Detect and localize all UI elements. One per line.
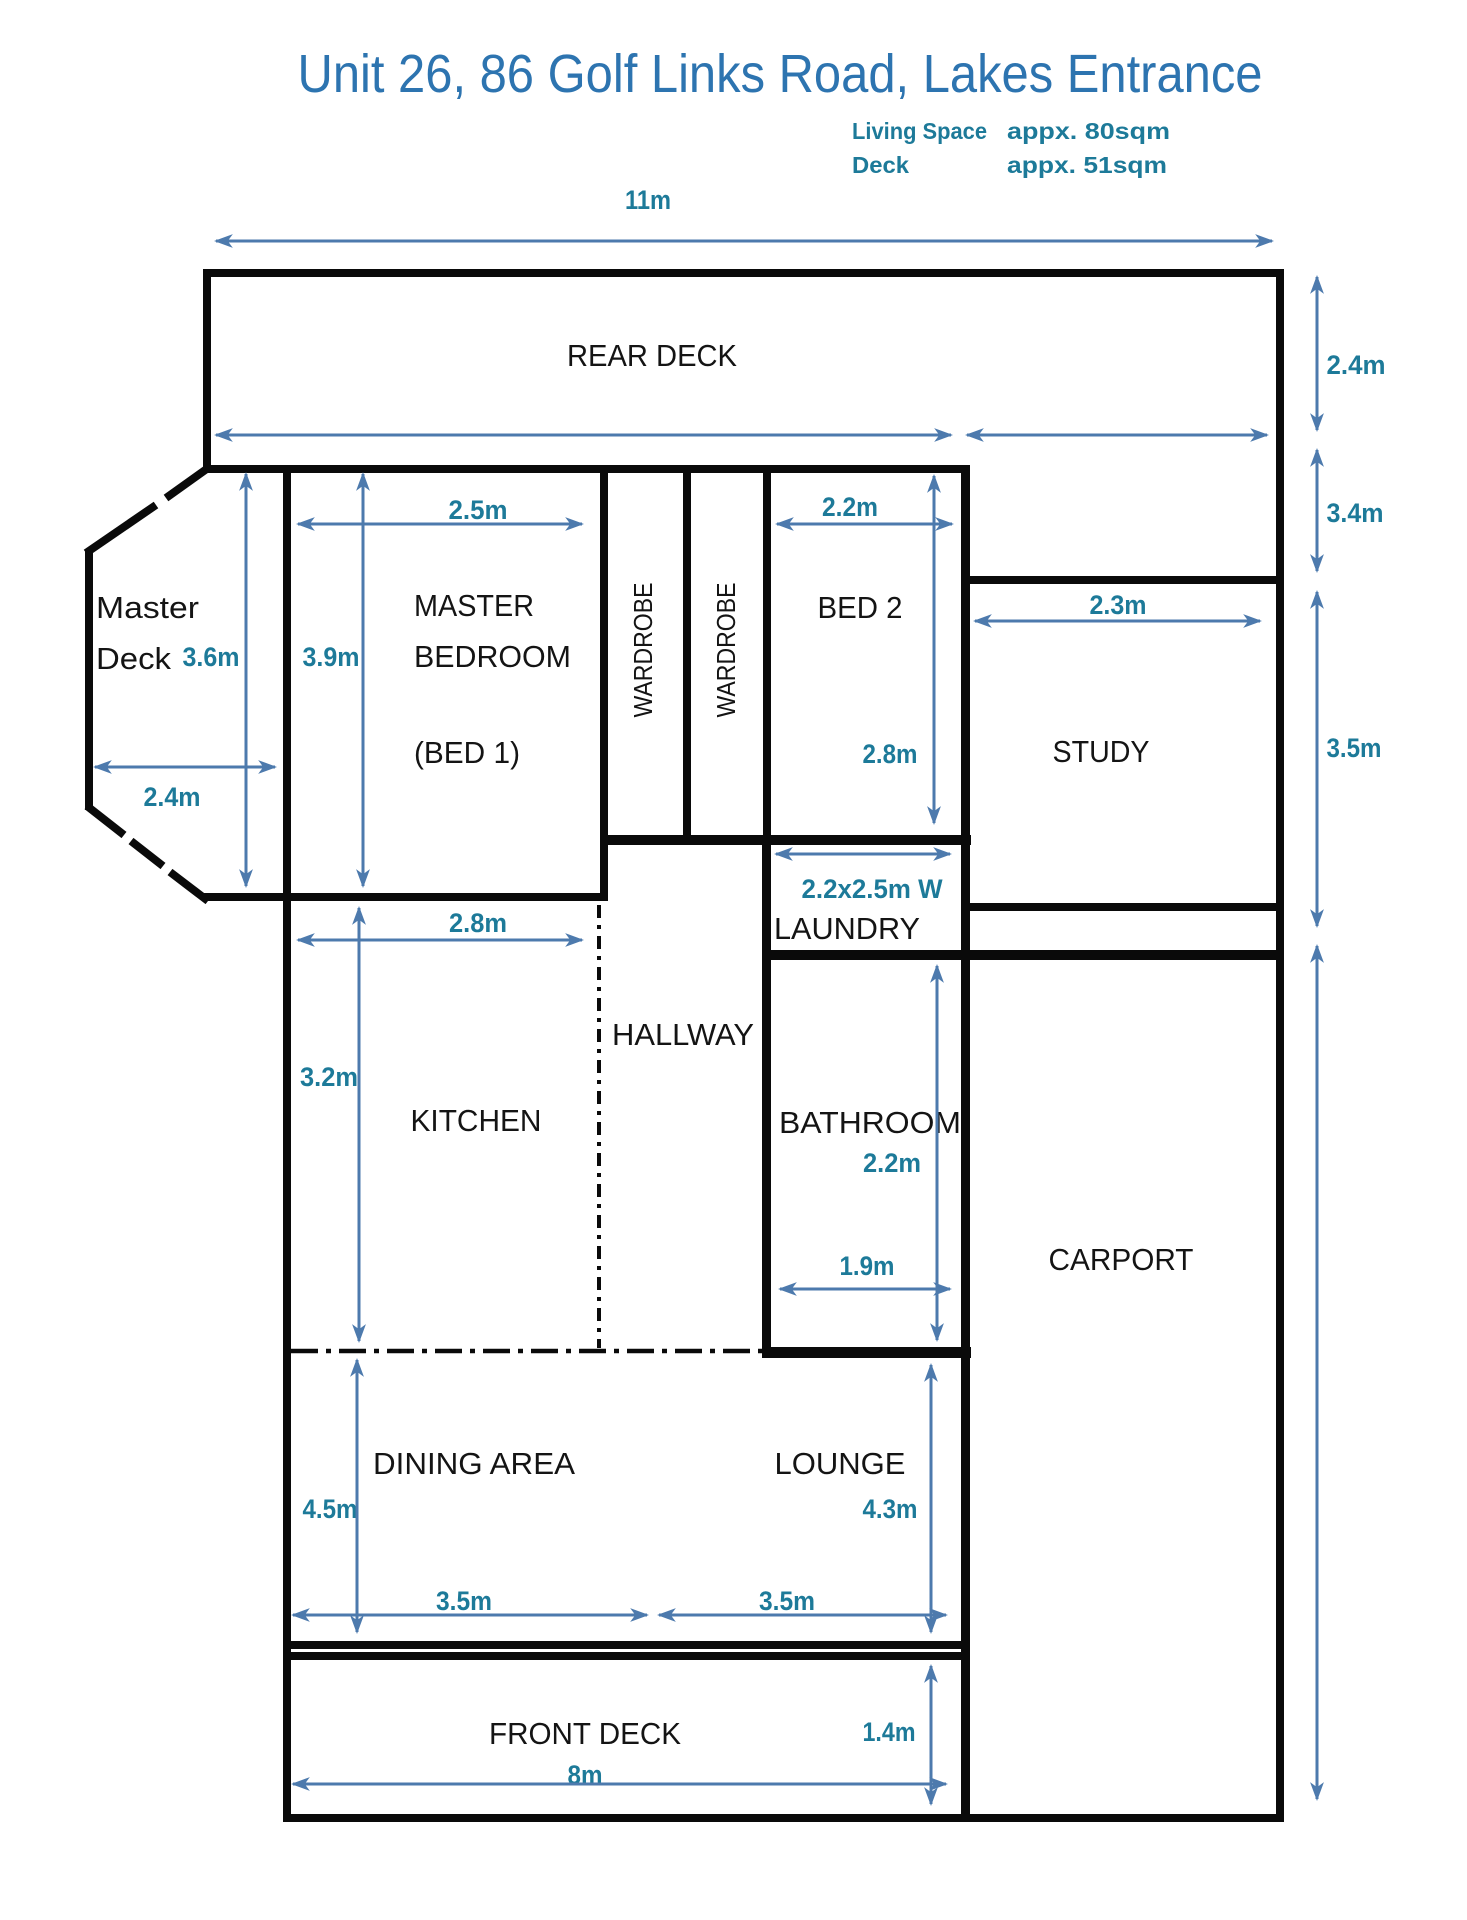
svg-text:FRONT DECK: FRONT DECK [489, 1716, 681, 1751]
svg-text:2.8m: 2.8m [863, 739, 918, 769]
svg-text:MASTER: MASTER [414, 588, 534, 623]
svg-text:11m: 11m [625, 185, 671, 215]
svg-text:BEDROOM: BEDROOM [414, 639, 571, 674]
svg-text:STUDY: STUDY [1053, 734, 1150, 769]
svg-text:appx. 51sqm: appx. 51sqm [1007, 152, 1167, 178]
svg-text:appx. 80sqm: appx. 80sqm [1007, 118, 1170, 144]
svg-text:3.9m: 3.9m [303, 642, 360, 672]
svg-text:LOUNGE: LOUNGE [775, 1446, 906, 1481]
svg-text:2.3m: 2.3m [1090, 590, 1147, 620]
svg-text:Unit 26, 86 Golf Links Road, L: Unit 26, 86 Golf Links Road, Lakes Entra… [298, 44, 1263, 104]
svg-text:4.3m: 4.3m [863, 1494, 918, 1524]
svg-text:2.2m: 2.2m [863, 1148, 921, 1178]
svg-text:2.2m: 2.2m [822, 492, 878, 522]
svg-text:2.4m: 2.4m [1327, 350, 1386, 380]
svg-text:3.2m: 3.2m [300, 1062, 358, 1092]
svg-text:4.5m: 4.5m [303, 1494, 358, 1524]
svg-text:1.4m: 1.4m [863, 1717, 916, 1747]
svg-text:3.5m: 3.5m [1327, 733, 1382, 763]
svg-text:BED 2: BED 2 [818, 590, 903, 625]
svg-text:WARDROBE: WARDROBE [628, 583, 658, 718]
svg-text:3.4m: 3.4m [1327, 498, 1384, 528]
svg-text:3.5m: 3.5m [759, 1586, 815, 1616]
svg-text:Master: Master [96, 590, 199, 625]
svg-text:2.2x2.5m W: 2.2x2.5m W [802, 874, 943, 904]
svg-text:3.5m: 3.5m [436, 1586, 492, 1616]
svg-text:WARDROBE: WARDROBE [711, 583, 741, 718]
svg-text:(BED 1): (BED 1) [414, 735, 520, 770]
svg-text:HALLWAY: HALLWAY [612, 1017, 754, 1052]
svg-text:2.5m: 2.5m [449, 495, 508, 525]
svg-text:Living Space: Living Space [852, 118, 987, 144]
svg-text:1.9m: 1.9m [840, 1251, 895, 1281]
svg-text:3.6m: 3.6m [183, 642, 240, 672]
svg-text:CARPORT: CARPORT [1049, 1242, 1194, 1277]
svg-text:LAUNDRY: LAUNDRY [774, 911, 920, 946]
svg-text:2.4m: 2.4m [144, 782, 201, 812]
svg-text:Deck: Deck [852, 152, 909, 178]
svg-text:BATHROOM: BATHROOM [779, 1105, 961, 1140]
svg-text:REAR DECK: REAR DECK [567, 338, 737, 373]
svg-text:DINING AREA: DINING AREA [373, 1446, 575, 1481]
svg-text:2.8m: 2.8m [449, 908, 507, 938]
svg-text:Deck: Deck [96, 641, 172, 676]
svg-text:KITCHEN: KITCHEN [411, 1103, 542, 1138]
